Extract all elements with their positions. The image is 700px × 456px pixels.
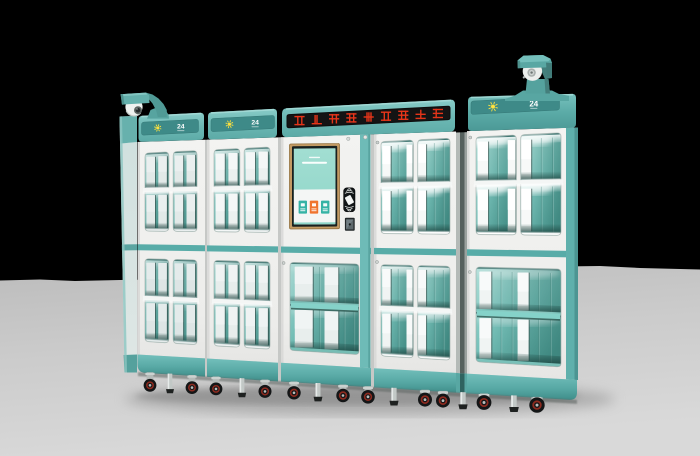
svg-text:24: 24 xyxy=(177,124,185,131)
svg-text:24: 24 xyxy=(251,120,259,127)
